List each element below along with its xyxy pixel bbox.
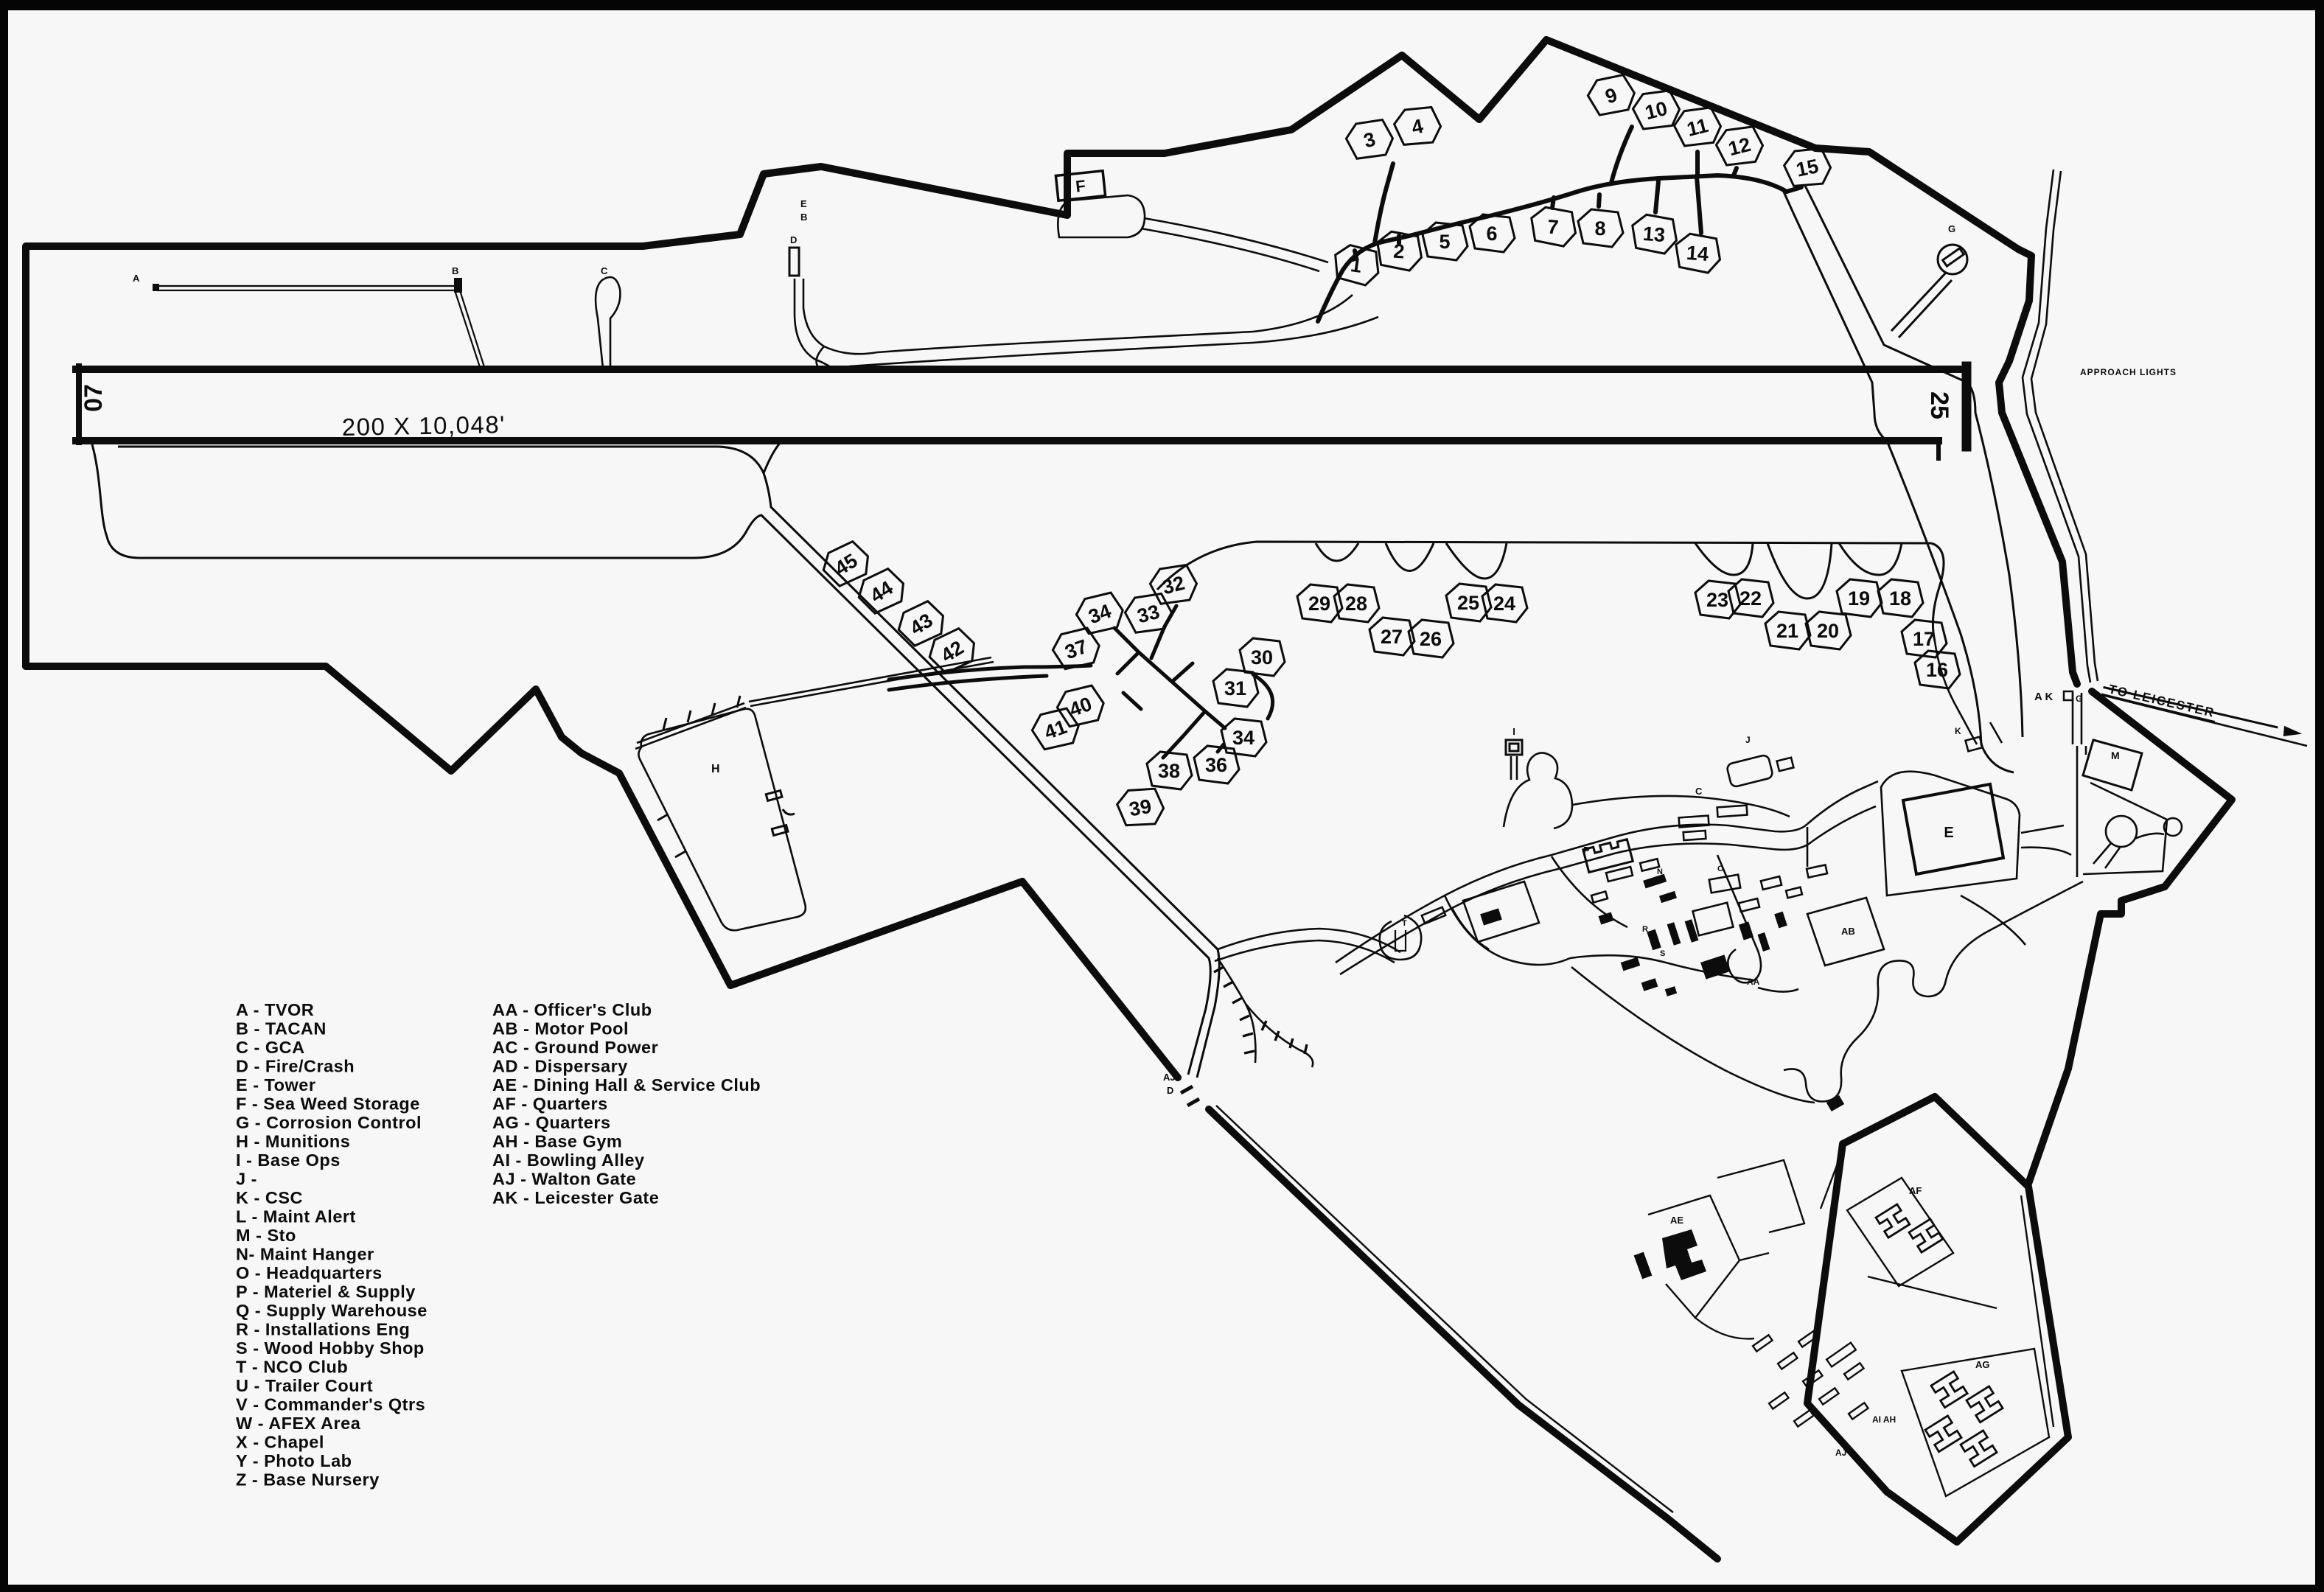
svg-text:36: 36 [1205,754,1227,776]
svg-text:34: 34 [1232,727,1255,749]
svg-text:AJ: AJ [1163,1072,1176,1083]
svg-text:B: B [800,212,807,223]
svg-text:S: S [1660,949,1665,958]
svg-text:07: 07 [80,384,108,412]
svg-text:AF - Quarters: AF - Quarters [492,1094,608,1114]
svg-text:D: D [1167,1085,1173,1096]
svg-text:T: T [1402,919,1407,928]
svg-text:AA: AA [1747,977,1760,987]
svg-text:15: 15 [1794,155,1821,181]
svg-text:AJ: AJ [1835,1448,1846,1458]
svg-text:W - AFEX Area: W - AFEX Area [236,1414,361,1433]
svg-text:AA - Officer's Club: AA - Officer's Club [492,1000,652,1019]
svg-text:14: 14 [1686,242,1709,265]
svg-text:13: 13 [1642,223,1666,246]
svg-text:U - Trailer Court: U - Trailer Court [236,1376,373,1395]
svg-text:AF: AF [1909,1185,1922,1196]
svg-text:V - Commander's Qtrs: V - Commander's Qtrs [236,1395,425,1414]
svg-text:M: M [2111,750,2120,761]
svg-text:A - TVOR: A - TVOR [236,1000,314,1019]
svg-text:23: 23 [1706,589,1728,611]
svg-text:31: 31 [1224,677,1246,699]
svg-text:C - GCA: C - GCA [236,1038,305,1057]
svg-text:A K: A K [2034,691,2053,703]
svg-text:AG: AG [1975,1359,1990,1370]
svg-text:S - Wood Hobby Shop: S - Wood Hobby Shop [236,1338,425,1358]
svg-text:20: 20 [1817,620,1839,642]
svg-text:Z - Base Nursery: Z - Base Nursery [236,1470,380,1490]
svg-text:Q - Supply Warehouse: Q - Supply Warehouse [236,1301,428,1320]
svg-text:16: 16 [1926,659,1948,681]
svg-text:27: 27 [1381,626,1403,648]
svg-text:G - Corrosion Control: G - Corrosion Control [236,1113,422,1132]
svg-text:F: F [1075,176,1086,195]
svg-text:26: 26 [1420,628,1442,650]
svg-text:E - Tower: E - Tower [236,1075,316,1094]
svg-text:I - Base Ops: I - Base Ops [236,1151,341,1170]
svg-text:C: C [601,265,608,276]
svg-text:F - Sea Weed Storage: F - Sea Weed Storage [236,1094,420,1114]
svg-text:2: 2 [1392,240,1405,263]
svg-text:Y - Photo Lab: Y - Photo Lab [236,1451,352,1470]
svg-text:D: D [790,234,797,245]
svg-text:T - NCO Club: T - NCO Club [236,1358,348,1377]
svg-text:AJ - Walton Gate: AJ - Walton Gate [492,1170,636,1189]
svg-text:5: 5 [1439,231,1450,253]
svg-text:R - Installations Eng: R - Installations Eng [236,1320,410,1339]
svg-text:38: 38 [1158,760,1180,782]
svg-text:A: A [133,273,140,284]
svg-text:APPROACH LIGHTS: APPROACH LIGHTS [2080,367,2177,377]
svg-text:AB: AB [1841,926,1855,937]
svg-text:C: C [1695,786,1703,797]
svg-text:24: 24 [1493,593,1515,615]
svg-text:19: 19 [1848,587,1870,610]
svg-text:AC - Ground Power: AC - Ground Power [492,1038,658,1057]
svg-text:M - Sto: M - Sto [236,1226,296,1245]
svg-text:AD - Dispersary: AD - Dispersary [492,1057,628,1076]
svg-text:6: 6 [1486,223,1497,245]
svg-text:18: 18 [1889,587,1911,610]
svg-text:B: B [452,265,458,276]
svg-text:H - Munitions: H - Munitions [236,1132,350,1151]
svg-text:G: G [1948,223,1955,234]
svg-text:28: 28 [1345,593,1367,615]
svg-text:J: J [1745,735,1751,745]
svg-text:AI AH: AI AH [1872,1414,1896,1425]
svg-text:O: O [1717,865,1724,873]
svg-text:29: 29 [1308,593,1330,615]
svg-text:21: 21 [1776,620,1798,642]
svg-text:25: 25 [1457,592,1479,614]
svg-text:200 X 10,048': 200 X 10,048' [341,411,506,441]
svg-text:E: E [1944,825,1953,841]
svg-text:N- Maint Hanger: N- Maint Hanger [236,1245,374,1264]
svg-text:AE: AE [1670,1215,1683,1226]
svg-text:K: K [1955,726,1961,736]
svg-text:E: E [800,198,807,209]
svg-text:B - TACAN: B - TACAN [236,1019,327,1038]
svg-text:39: 39 [1128,795,1154,821]
svg-text:X - Chapel: X - Chapel [236,1433,324,1452]
svg-text:L - Maint Alert: L - Maint Alert [236,1207,356,1226]
svg-text:30: 30 [1251,646,1273,668]
svg-text:O - Headquarters: O - Headquarters [236,1263,383,1282]
svg-text:L: L [2138,722,2143,732]
svg-text:25: 25 [1925,391,1953,419]
svg-text:AE - Dining Hall & Service Clu: AE - Dining Hall & Service Club [492,1075,761,1094]
svg-text:G: G [2076,694,2082,704]
svg-text:D - Fire/Crash: D - Fire/Crash [236,1057,355,1076]
svg-text:AI - Bowling Alley: AI - Bowling Alley [492,1151,645,1170]
svg-text:H: H [711,763,720,775]
svg-text:AK - Leicester Gate: AK - Leicester Gate [492,1188,659,1207]
svg-text:AG - Quarters: AG - Quarters [492,1113,611,1132]
svg-text:K - CSC: K - CSC [236,1188,303,1207]
svg-text:7: 7 [1546,216,1559,239]
svg-text:AB - Motor Pool: AB - Motor Pool [492,1019,629,1038]
svg-text:J -: J - [236,1170,257,1189]
svg-text:I: I [1512,726,1515,737]
svg-text:8: 8 [1594,217,1605,240]
svg-text:22: 22 [1739,587,1762,610]
svg-text:AH - Base Gym: AH - Base Gym [492,1132,622,1151]
svg-text:17: 17 [1913,628,1935,650]
svg-text:P - Materiel & Supply: P - Materiel & Supply [236,1282,416,1302]
